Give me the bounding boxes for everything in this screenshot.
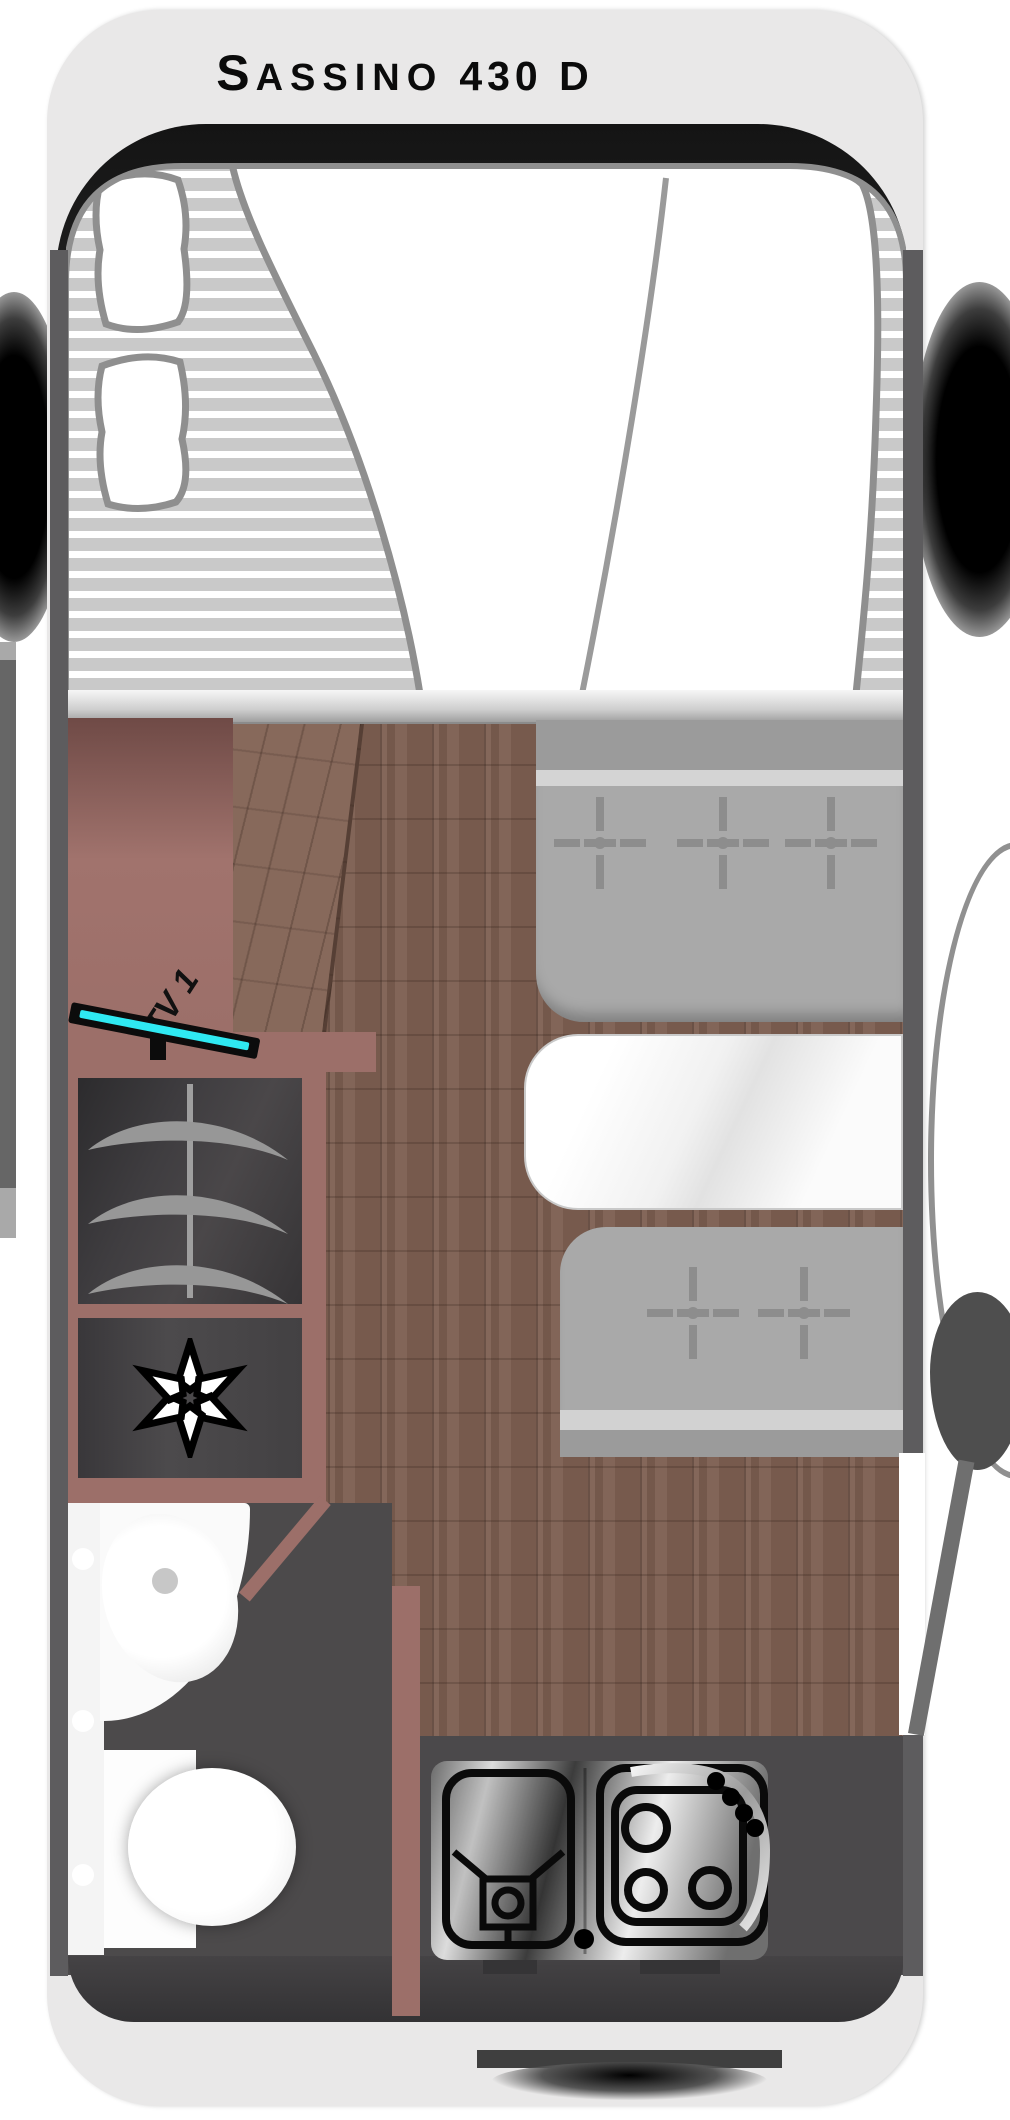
left-wall <box>50 250 68 1976</box>
washbasin-faucet-icon <box>152 1568 178 1594</box>
wardrobe-fridge-block <box>68 1072 326 1503</box>
hinge-dot-2 <box>72 1710 94 1732</box>
fridge <box>78 1318 302 1478</box>
rear-bumper-shadow <box>492 2062 767 2100</box>
hangers-icon <box>78 1078 302 1304</box>
pillow-bottom <box>98 357 186 509</box>
sink-leg <box>483 1958 537 1974</box>
bed-area <box>66 154 906 694</box>
rear-left-skirt <box>0 660 16 1220</box>
right-wall-upper <box>903 250 923 1455</box>
page-title: SASSINO430 D <box>0 44 810 102</box>
seatbelt-mark-1 <box>554 797 646 889</box>
dinette-table <box>524 1034 903 1210</box>
floorplan-page: SASSINO430 D TV 1 <box>0 0 1010 2120</box>
title-brand-initial: S <box>216 45 255 101</box>
hob-leg <box>640 1958 720 1974</box>
pillow-top <box>96 174 187 330</box>
rear-bench <box>560 1227 903 1457</box>
fridge-asterisk-icon <box>130 1338 250 1458</box>
hinge-dot-3 <box>72 1864 94 1886</box>
hanging-wardrobe <box>78 1078 302 1304</box>
right-wall-lower <box>903 1733 923 1976</box>
front-bench-trim <box>536 770 903 786</box>
toilet-bowl <box>128 1768 296 1926</box>
title-brand-rest: ASSINO <box>256 57 444 99</box>
rear-bench-trim <box>560 1410 903 1430</box>
sink-drain-dot <box>574 1929 594 1949</box>
seatbelt-mark-3 <box>785 797 877 889</box>
kitchen-unit <box>425 1752 775 1977</box>
seatbelt-mark-4 <box>647 1267 739 1359</box>
front-bench-backrest <box>536 720 903 770</box>
front-bench <box>536 720 903 1022</box>
rear-right-wheel <box>930 1292 1010 1470</box>
kitchen-sink <box>446 1773 571 1945</box>
seatbelt-mark-5 <box>758 1267 850 1359</box>
seatbelt-mark-2 <box>677 797 769 889</box>
corridor-partition-wall <box>392 1586 420 2016</box>
hinge-dot-1 <box>72 1548 94 1570</box>
rear-bench-backrest <box>560 1430 903 1457</box>
rear-left-skirt-bottom <box>0 1188 16 1238</box>
front-right-wheel <box>912 282 1010 637</box>
title-variant: 430 D <box>459 53 593 99</box>
